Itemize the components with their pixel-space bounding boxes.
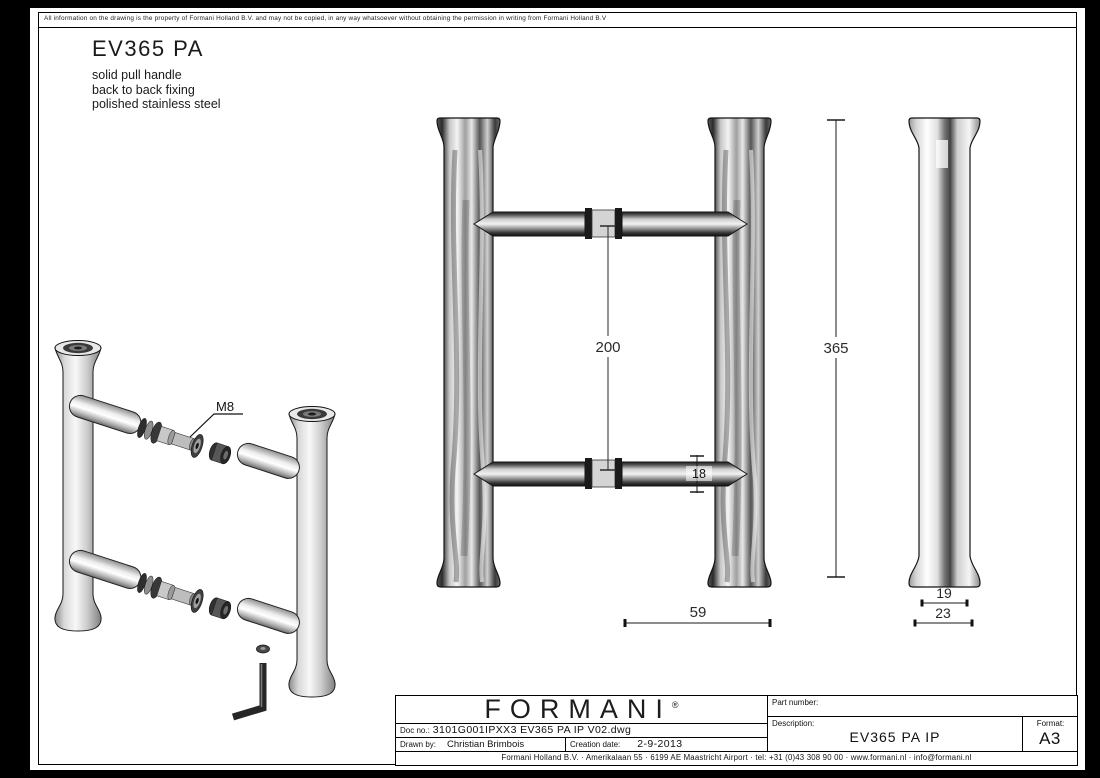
dim-59-label: 59 bbox=[690, 604, 707, 621]
dimension-365: 365 bbox=[815, 120, 858, 577]
dimension-23: 23 bbox=[914, 605, 974, 627]
side-view: 19 23 bbox=[909, 118, 980, 627]
front-right-pillar bbox=[708, 118, 771, 587]
m8-bolt-label: M8 bbox=[216, 399, 234, 414]
front-view: 200 18 365 59 bbox=[437, 118, 858, 627]
dim-19-label: 19 bbox=[936, 585, 952, 601]
dim-365-label: 365 bbox=[823, 340, 848, 357]
dim-23-label: 23 bbox=[935, 605, 951, 621]
dim-200-label: 200 bbox=[595, 339, 620, 356]
exploded-right-tube bbox=[289, 407, 335, 698]
exploded-left-tube bbox=[55, 341, 101, 632]
side-pillar-highlight bbox=[936, 140, 948, 168]
dimension-19: 19 bbox=[921, 585, 969, 607]
front-upper-crossbar bbox=[474, 208, 747, 239]
m8-leader-line bbox=[190, 414, 243, 437]
loose-nut bbox=[257, 645, 270, 653]
exploded-upper-crossbar bbox=[67, 393, 303, 482]
dimension-200: 200 bbox=[587, 226, 629, 470]
exploded-view: M8 bbox=[55, 341, 335, 718]
dimension-18: 18 bbox=[686, 455, 712, 493]
dim-18-label: 18 bbox=[692, 467, 706, 481]
exploded-lower-crossbar bbox=[67, 548, 303, 637]
side-pillar bbox=[909, 118, 980, 587]
dimension-59: 59 bbox=[624, 604, 772, 627]
front-left-pillar bbox=[437, 118, 500, 587]
technical-drawing: M8 200 18 bbox=[0, 0, 1100, 778]
allen-key bbox=[233, 663, 263, 717]
